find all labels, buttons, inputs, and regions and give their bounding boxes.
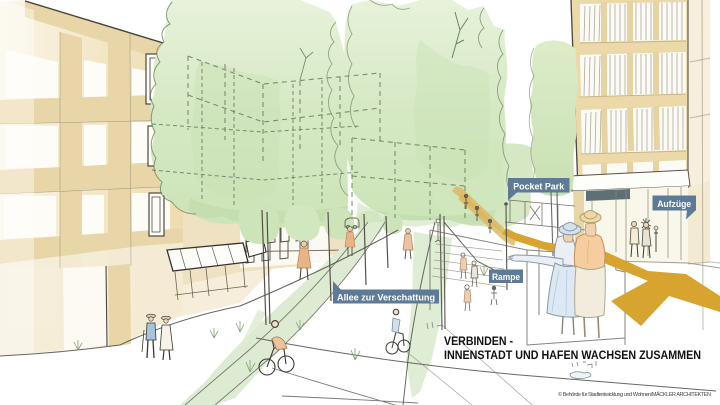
svg-text:VERBINDEN -: VERBINDEN - <box>444 336 513 348</box>
svg-text:INNENSTADT UND HAFEN WACHSEN Z: INNENSTADT UND HAFEN WACHSEN ZUSAMMEN <box>444 350 701 362</box>
svg-text:© Behörde für Stadtentwicklung: © Behörde für Stadtentwicklung und Wohne… <box>558 391 711 398</box>
svg-text:Allee zur Verschattung: Allee zur Verschattung <box>337 293 435 304</box>
svg-text:Rampe: Rampe <box>492 272 520 283</box>
svg-text:Pocket Park: Pocket Park <box>513 182 565 193</box>
svg-text:Aufzüge: Aufzüge <box>657 199 691 210</box>
